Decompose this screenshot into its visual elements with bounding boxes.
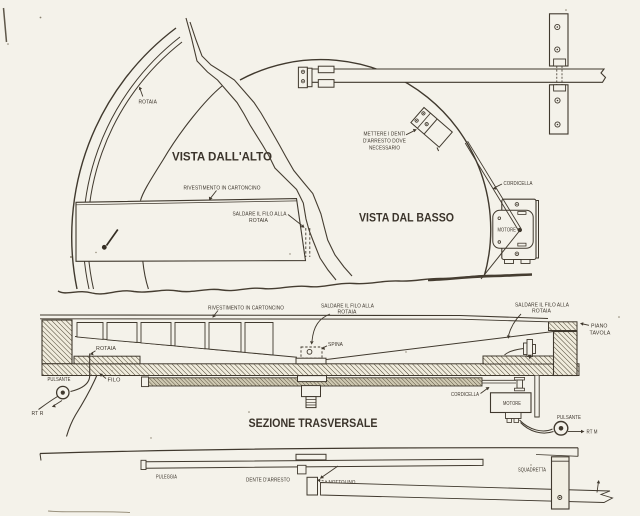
svg-text:FILO: FILO <box>108 378 121 384</box>
svg-text:VISTA DALL'ALTO: VISTA DALL'ALTO <box>172 150 272 164</box>
svg-text:D'ARRESTO DOVE: D'ARRESTO DOVE <box>363 139 406 145</box>
svg-text:PULSANTE: PULSANTE <box>557 415 581 421</box>
svg-text:MOTORE: MOTORE <box>503 401 521 407</box>
svg-text:METTERE I DENTI: METTERE I DENTI <box>364 132 406 138</box>
svg-text:VISTA DAL BASSO: VISTA DAL BASSO <box>359 211 454 225</box>
svg-text:PULEGGIA: PULEGGIA <box>156 475 177 481</box>
svg-text:SALDARE IL FILO ALLA: SALDARE IL FILO ALLA <box>233 212 287 218</box>
svg-text:ROTAIA: ROTAIA <box>96 346 116 352</box>
svg-text:CORDICELLA: CORDICELLA <box>504 181 533 187</box>
svg-text:PULSANTE: PULSANTE <box>48 377 71 383</box>
svg-text:MOTORE: MOTORE <box>498 228 517 234</box>
svg-text:TAVOLA: TAVOLA <box>590 331 611 337</box>
svg-text:RIVESTIMENTO IN CARTONCINO: RIVESTIMENTO IN CARTONCINO <box>184 186 261 192</box>
svg-text:RIVESTIMENTO IN CARTONCINO: RIVESTIMENTO IN CARTONCINO <box>208 306 284 312</box>
svg-text:ROTAIA: ROTAIA <box>532 309 551 315</box>
svg-text:SQUADRETTA: SQUADRETTA <box>518 468 546 474</box>
svg-text:ROTAIA: ROTAIA <box>249 218 268 224</box>
svg-text:ROTAIA: ROTAIA <box>139 100 158 106</box>
svg-text:SPINA: SPINA <box>328 342 343 348</box>
svg-text:CORDICELLA: CORDICELLA <box>451 392 479 398</box>
svg-text:DENTE D'ARRESTO: DENTE D'ARRESTO <box>246 478 290 484</box>
svg-text:RT M: RT M <box>587 430 598 436</box>
svg-text:RT R: RT R <box>32 411 44 417</box>
svg-text:SEZIONE TRASVERSALE: SEZIONE TRASVERSALE <box>249 416 378 430</box>
svg-text:NECESSARIO: NECESSARIO <box>369 146 400 152</box>
svg-text:ROTAIA: ROTAIA <box>338 310 357 316</box>
svg-text:PIANO: PIANO <box>591 324 608 330</box>
